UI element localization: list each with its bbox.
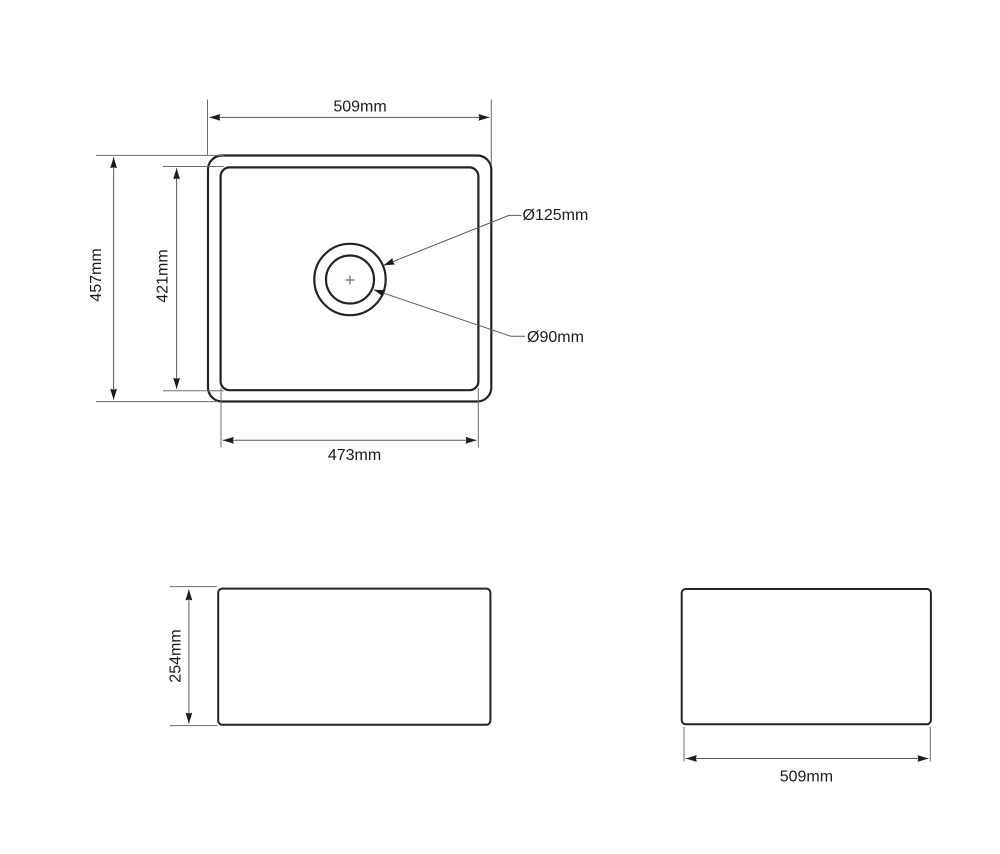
svg-text:509mm: 509mm bbox=[780, 769, 833, 786]
svg-text:Ø90mm: Ø90mm bbox=[527, 329, 584, 346]
svg-text:457mm: 457mm bbox=[88, 248, 105, 301]
svg-text:421mm: 421mm bbox=[155, 249, 172, 302]
svg-text:509mm: 509mm bbox=[333, 99, 386, 116]
svg-text:254mm: 254mm bbox=[168, 629, 185, 682]
svg-text:Ø125mm: Ø125mm bbox=[523, 207, 589, 224]
svg-text:473mm: 473mm bbox=[328, 447, 381, 464]
